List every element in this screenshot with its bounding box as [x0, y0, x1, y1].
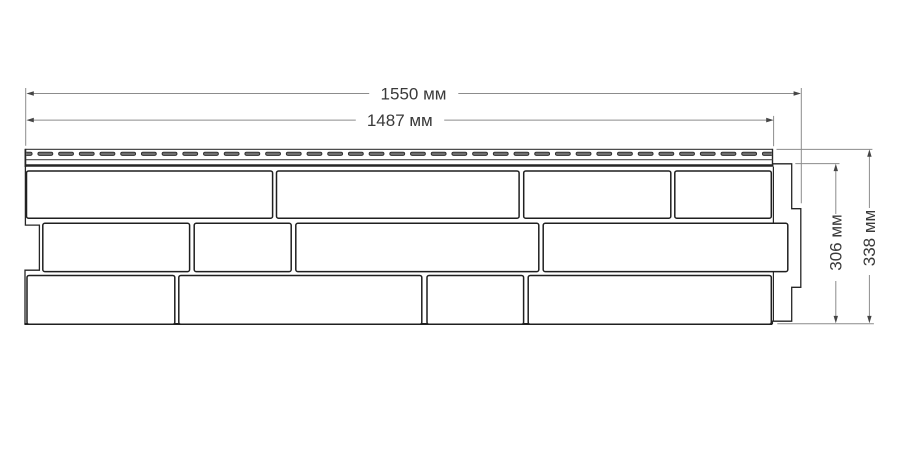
svg-text:306 мм: 306 мм [826, 214, 845, 270]
svg-text:1487 мм: 1487 мм [367, 111, 433, 130]
svg-text:338 мм: 338 мм [860, 210, 879, 266]
svg-text:1550 мм: 1550 мм [381, 85, 447, 104]
